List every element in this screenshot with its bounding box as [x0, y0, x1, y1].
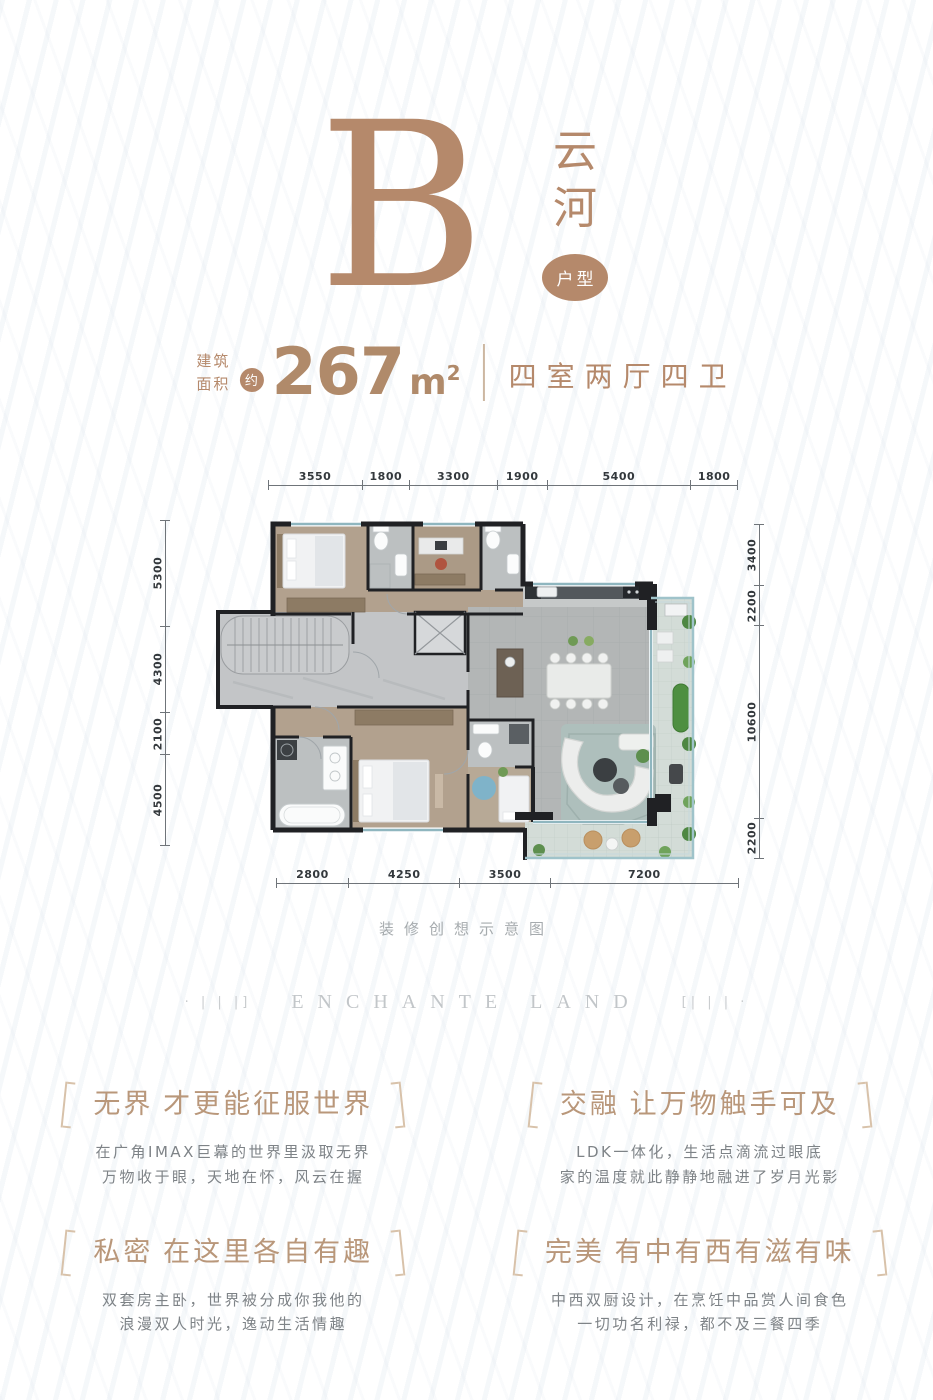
brochure-page: B 云 河 户型 建筑 面积 约 267 m2 四室两厅四卫 355018003…	[0, 0, 933, 1400]
dimension-label: 3550	[268, 470, 362, 483]
area-label-line1: 建筑	[196, 352, 230, 370]
bracket-left-icon	[61, 1082, 76, 1129]
dimension-segment: 1900	[497, 470, 547, 486]
feature-heading-row: 交融 让万物触手可及	[530, 1082, 870, 1128]
dimension-bottom: 2800425035007200	[276, 868, 738, 884]
dimension-label: 3500	[460, 868, 551, 881]
feature-body-line2: 万物收于眼，天地在怀，风云在握	[96, 1165, 371, 1190]
brand-line: · | | |] ENCHANTE LAND [| | | ·	[0, 991, 933, 1014]
feature-body-line1: LDK一体化，生活点滴流过眼底	[560, 1140, 840, 1165]
feature-body-line1: 双套房主卧，世界被分成你我他的	[102, 1288, 365, 1313]
brand-left-marks: · | | |]	[185, 995, 252, 1010]
feature-body: 在广角IMAX巨幕的世界里汲取无界 万物收于眼，天地在怀，风云在握	[96, 1140, 371, 1190]
unit-name-char-1: 云	[553, 130, 597, 174]
dimension-label: 3300	[410, 470, 497, 483]
dimension-label: 7200	[551, 868, 738, 881]
unit-letter: B	[318, 92, 486, 320]
feature-block-1: 无界 才更能征服世界 在广角IMAX巨幕的世界里汲取无界 万物收于眼，天地在怀，…	[0, 1082, 467, 1190]
dimension-segment: 10600	[744, 626, 760, 818]
dimension-segment: 7200	[551, 868, 738, 884]
brand-name: ENCHANTE LAND	[291, 991, 641, 1014]
dimension-label: 2800	[276, 868, 349, 881]
feature-heading-row: 私密 在这里各自有趣	[63, 1230, 403, 1276]
bracket-left-icon	[527, 1082, 542, 1129]
dimension-label: 5400	[547, 470, 690, 483]
dimension-top: 355018003300190054001800	[268, 470, 738, 486]
plan-elevator	[415, 612, 465, 654]
feature-heading-row: 完美 有中有西有滋有味	[515, 1230, 885, 1276]
dimension-label: 4250	[349, 868, 460, 881]
dimension-segment: 4250	[349, 868, 460, 884]
dimension-label: 5300	[151, 557, 164, 590]
room-configuration: 四室两厅四卫	[509, 355, 737, 395]
dimension-label: 2200	[745, 589, 758, 622]
dimension-label: 2100	[151, 717, 164, 750]
unit-type-badge: 户型	[542, 254, 608, 301]
dimension-label: 1800	[362, 470, 410, 483]
dimension-segment: 3400	[744, 524, 760, 586]
dimension-label: 10600	[745, 701, 758, 742]
feature-body: 双套房主卧，世界被分成你我他的 浪漫双人时光，逸动生活情趣	[102, 1288, 365, 1338]
dimension-segment: 2800	[276, 868, 349, 884]
area-label-line2: 面积	[196, 375, 230, 393]
feature-body-line2: 浪漫双人时光，逸动生活情趣	[102, 1312, 365, 1337]
feature-block-3: 私密 在这里各自有趣 双套房主卧，世界被分成你我他的 浪漫双人时光，逸动生活情趣	[0, 1230, 467, 1338]
dimension-segment: 2100	[150, 713, 166, 755]
feature-block-4: 完美 有中有西有滋有味 中西双厨设计，在烹饪中品赏人间食色 一切功名利禄，都不及…	[467, 1230, 933, 1338]
plan-caption: 装修创想示意图	[0, 918, 933, 939]
feature-title: 无界 才更能征服世界	[93, 1083, 373, 1126]
feature-title: 交融 让万物触手可及	[560, 1083, 840, 1126]
feature-body: LDK一体化，生活点滴流过眼底 家的温度就此静静地融进了岁月光影	[560, 1140, 840, 1190]
feature-body-line1: 在广角IMAX巨幕的世界里汲取无界	[96, 1140, 371, 1165]
dimension-segment: 5300	[150, 520, 166, 626]
dimension-label: 1800	[690, 470, 738, 483]
dimension-segment: 3300	[410, 470, 497, 486]
dimension-segment: 4300	[150, 626, 166, 712]
area-label: 建筑 面积	[196, 350, 230, 395]
feature-grid: 无界 才更能征服世界 在广角IMAX巨幕的世界里汲取无界 万物收于眼，天地在怀，…	[0, 1082, 933, 1337]
dimension-label: 4300	[151, 653, 164, 686]
bracket-right-icon	[872, 1229, 887, 1276]
dimension-segment: 3500	[460, 868, 551, 884]
dimension-label: 3400	[745, 539, 758, 572]
area-summary: 建筑 面积 约 267 m2 四室两厅四卫	[196, 340, 736, 405]
feature-body-line1: 中西双厨设计，在烹饪中品赏人间食色	[551, 1288, 849, 1313]
feature-body-line2: 一切功名利禄，都不及三餐四季	[551, 1312, 849, 1337]
area-divider	[483, 344, 485, 401]
dimension-label: 2200	[745, 822, 758, 855]
bracket-right-icon	[857, 1082, 872, 1129]
bracket-left-icon	[61, 1229, 76, 1276]
feature-body: 中西双厨设计，在烹饪中品赏人间食色 一切功名利禄，都不及三餐四季	[551, 1288, 849, 1338]
dimension-segment: 5400	[547, 470, 690, 486]
feature-body-line2: 家的温度就此静静地融进了岁月光影	[560, 1165, 840, 1190]
dimension-segment: 1800	[690, 470, 738, 486]
floor-plan	[203, 512, 738, 860]
feature-heading-row: 无界 才更能征服世界	[63, 1082, 403, 1128]
approx-circle: 约	[239, 368, 263, 392]
dimension-label: 4500	[151, 784, 164, 817]
dimension-left: 5300430021004500	[150, 520, 166, 845]
dimension-segment: 1800	[362, 470, 410, 486]
dimension-segment: 2200	[744, 818, 760, 858]
unit-name: 云 河 户型	[540, 130, 610, 301]
feature-title: 完美 有中有西有滋有味	[545, 1231, 855, 1274]
floor-plan-graphic	[203, 512, 738, 860]
area-unit: m2	[409, 363, 460, 401]
area-unit-sup: 2	[447, 361, 461, 385]
feature-block-2: 交融 让万物触手可及 LDK一体化，生活点滴流过眼底 家的温度就此静静地融进了岁…	[467, 1082, 933, 1190]
dimension-right: 34002200106002200	[744, 524, 760, 858]
dimension-segment: 4500	[150, 755, 166, 845]
dimension-segment: 3550	[268, 470, 362, 486]
bracket-left-icon	[512, 1229, 527, 1276]
brand-right-marks: [| | | ·	[682, 995, 749, 1010]
dimension-label: 1900	[497, 470, 547, 483]
feature-title: 私密 在这里各自有趣	[93, 1231, 373, 1274]
bracket-right-icon	[391, 1229, 406, 1276]
bracket-right-icon	[391, 1082, 406, 1129]
dimension-segment: 2200	[744, 586, 760, 626]
area-value: 267	[271, 340, 404, 405]
unit-name-char-2: 河	[553, 187, 597, 231]
